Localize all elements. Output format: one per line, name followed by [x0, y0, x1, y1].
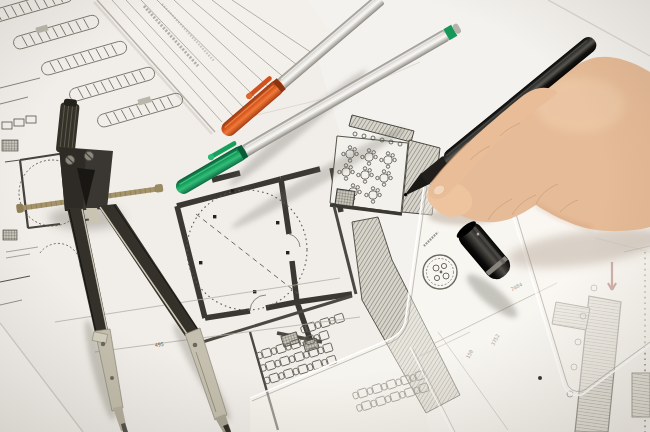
vignette-overlay: [0, 0, 650, 432]
scene-canvas: 495 150 3752 2084: [0, 0, 650, 432]
photo-architect-desk: 495 150 3752 2084: [0, 0, 650, 432]
